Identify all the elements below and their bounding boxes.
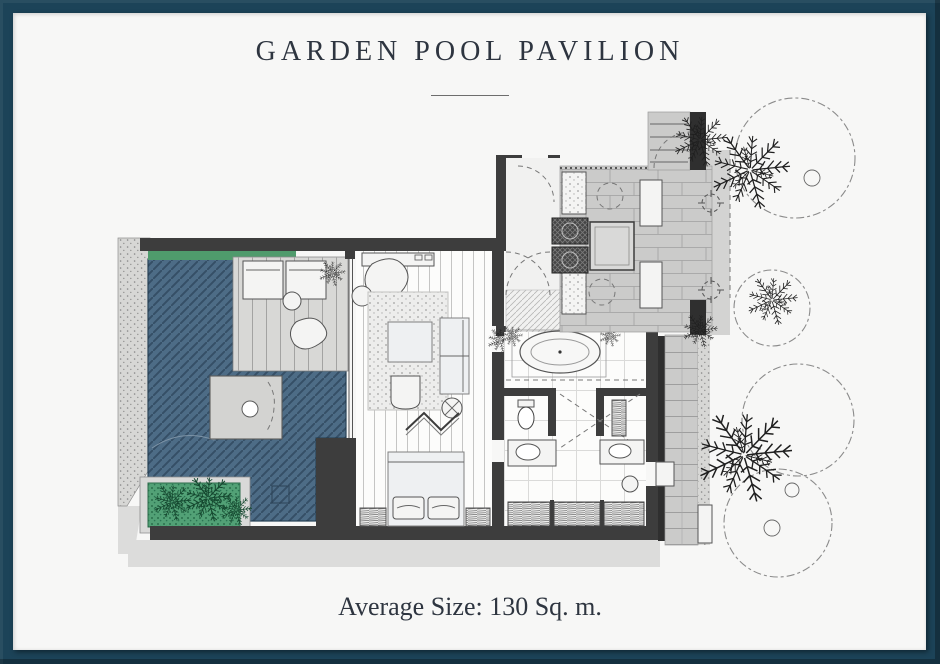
garden-path-right — [656, 335, 712, 545]
nightstand — [360, 508, 386, 526]
shower-niche — [612, 400, 626, 436]
king-bed — [388, 452, 464, 526]
planter-box — [640, 262, 662, 308]
average-size-label: Average Size: 130 Sq. m. — [0, 592, 940, 622]
wardrobe — [508, 502, 644, 526]
courtyard-table — [590, 222, 634, 270]
lounge-chair — [391, 376, 420, 409]
sofa — [440, 318, 469, 394]
vanity-left — [508, 440, 556, 466]
pool-top-wall — [140, 238, 506, 251]
bathroom — [501, 326, 654, 526]
side-table — [442, 398, 462, 418]
garden-path-left — [118, 238, 150, 506]
floor-plan — [0, 0, 940, 664]
path-bench — [698, 505, 712, 543]
nightstand — [466, 508, 490, 526]
bath-stool — [622, 476, 638, 492]
garden-planter — [140, 476, 252, 533]
coffee-table — [388, 322, 432, 362]
palm-tree-icon — [697, 410, 792, 503]
palm-tree-icon — [747, 276, 798, 326]
bedroom — [352, 251, 513, 526]
path-step — [656, 462, 674, 486]
entry-courtyard — [552, 112, 730, 340]
toilet — [518, 400, 534, 429]
pool-daybed-platform — [210, 376, 282, 439]
tree-canopies — [724, 98, 855, 577]
entry-foyer — [506, 158, 560, 332]
deck-side-table — [283, 292, 301, 310]
planter-box — [640, 180, 662, 226]
pool-deck — [233, 257, 348, 371]
vanity-right — [600, 440, 644, 464]
